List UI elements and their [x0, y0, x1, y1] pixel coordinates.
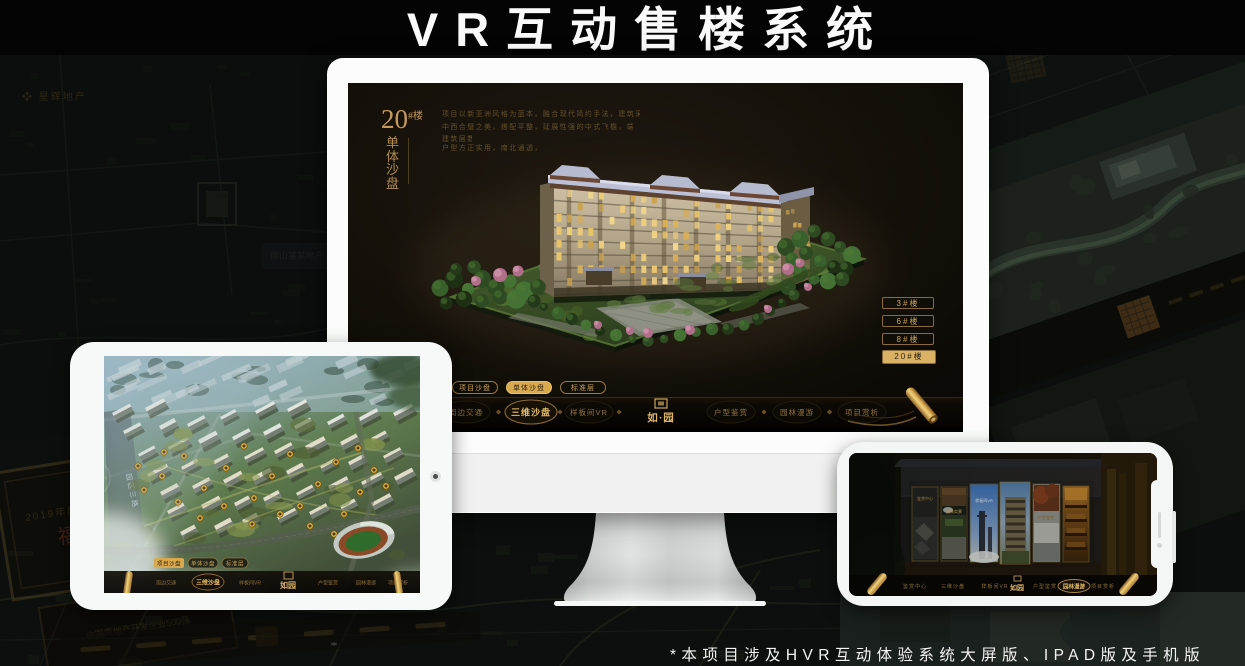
svg-text:如·园: 如·园: [647, 411, 675, 424]
svg-text:三维沙盘: 三维沙盘: [511, 407, 551, 418]
svg-text:项目沙盘: 项目沙盘: [157, 560, 181, 568]
svg-text:样板间VR: 样板间VR: [239, 580, 261, 587]
svg-text:单体沙盘: 单体沙盘: [191, 560, 215, 568]
svg-text:标准层: 标准层: [226, 560, 244, 568]
svg-text:三维沙盘: 三维沙盘: [941, 583, 965, 590]
svg-text:户型鉴赏: 户型鉴赏: [1033, 583, 1057, 590]
svg-text:园林漫游: 园林漫游: [1063, 583, 1086, 591]
svg-text:户型鉴赏: 户型鉴赏: [318, 580, 338, 587]
svg-text:周边交通: 周边交通: [156, 580, 176, 587]
svg-text:三维沙盘: 三维沙盘: [196, 579, 220, 587]
svg-text:项目赏析: 项目赏析: [1091, 583, 1115, 590]
svg-text:园林漫游: 园林漫游: [780, 407, 814, 417]
svg-text:佛山某某地产: 佛山某某地产: [270, 250, 324, 261]
svg-text:园林漫游: 园林漫游: [356, 580, 376, 587]
svg-text:如园: 如园: [280, 580, 296, 590]
svg-text:周边交通: 周边交通: [449, 407, 483, 417]
svg-text:鉴赏中心: 鉴赏中心: [903, 583, 927, 590]
svg-text:如园: 如园: [1010, 583, 1024, 592]
svg-text:样板间VR: 样板间VR: [982, 583, 1009, 590]
svg-text:户型鉴赏: 户型鉴赏: [714, 407, 748, 417]
svg-text:样板间VR: 样板间VR: [570, 407, 608, 417]
